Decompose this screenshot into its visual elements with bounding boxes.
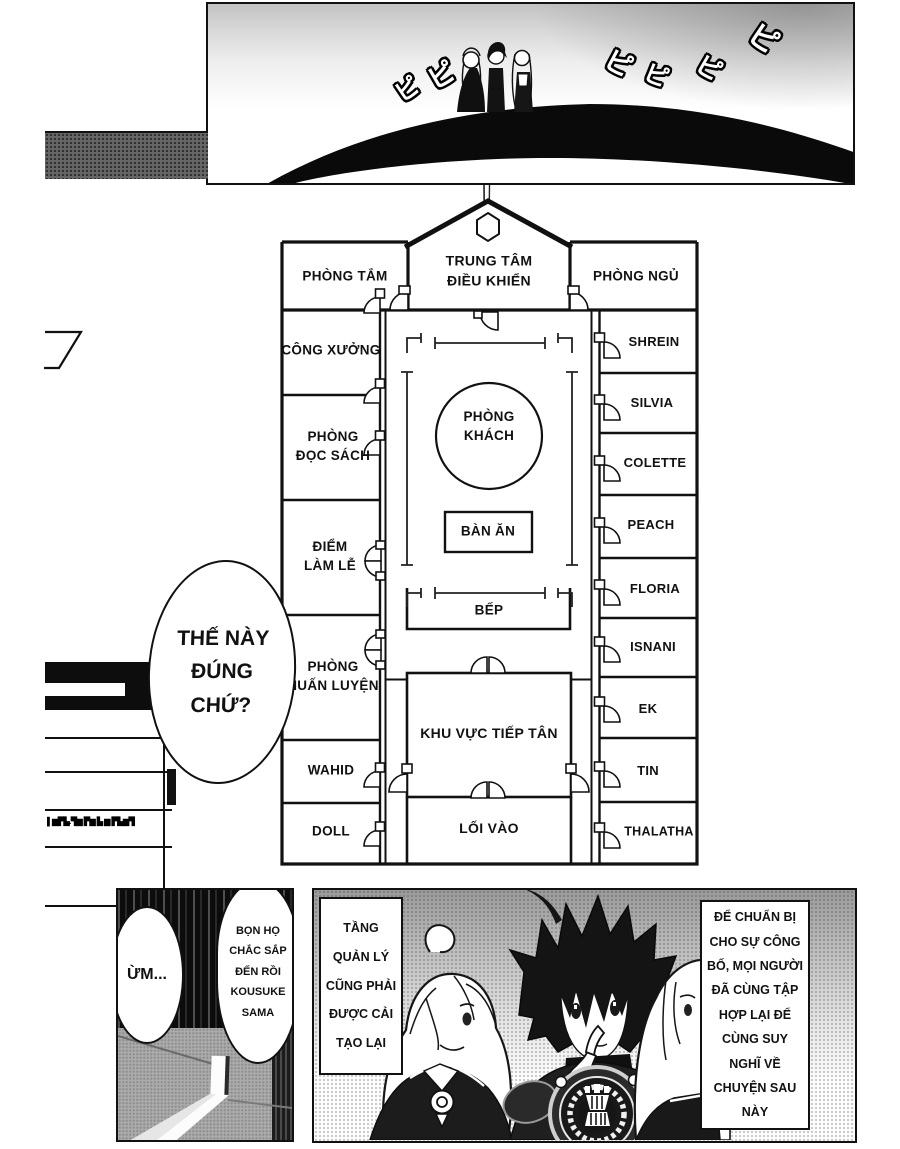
bottom-left-panel-dark-room: ỪM... BỌN HỌ CHẮC SẮP ĐẾN RỒI KOUSUKE SA… — [116, 888, 294, 1142]
room-label-thalatha: THALATHA — [624, 823, 694, 841]
hexagon-icon — [477, 213, 499, 241]
room-label-colette: COLETTE — [624, 454, 687, 472]
room-label-reception: KHU VỰC TIẾP TÂN — [420, 724, 558, 744]
caption-management: TẦNG QUẢN LÝ CŨNG PHẢI ĐƯỢC CẢI TẠO LẠI — [319, 897, 403, 1075]
bottom-wide-panel-characters: TẦNG QUẢN LÝ CŨNG PHẢI ĐƯỢC CẢI TẠO LẠI … — [312, 888, 857, 1143]
caption-announcement: ĐỂ CHUẨN BỊ CHO SỰ CÔNG BỐ, MỌI NGƯỜI ĐÃ… — [700, 900, 810, 1130]
room-label-kitchen: BẾP — [475, 602, 504, 621]
room-label-control: TRUNG TÂM ĐIỀU KHIỂN — [446, 251, 533, 290]
room-label-shrein: SHREIN — [629, 333, 680, 351]
room-label-wahid: WAHID — [308, 762, 355, 781]
room-label-bathroom: PHÒNG TẮM — [302, 268, 387, 287]
floorplan: TRUNG TÂM ĐIỀU KHIỂN PHÒNG TẮM CÔNG XƯỞN… — [0, 0, 900, 900]
room-label-living: PHÒNG KHÁCH — [463, 408, 514, 446]
gear-emblem-icon — [550, 1067, 644, 1140]
floorplan-drawing — [0, 0, 900, 900]
room-label-silvia: SILVIA — [631, 394, 674, 412]
room-label-training: PHÒNG HUẤN LUYỆN — [287, 658, 379, 696]
room-label-ceremony: ĐIỂM LÀM LỄ — [304, 538, 356, 576]
room-label-reading: PHÒNG ĐỌC SÁCH — [296, 428, 370, 466]
room-label-ek: EK — [639, 700, 658, 718]
manga-page: ピ ピ ピ ピ ピ ピ ▌▆▛▙.▜▆ ▛▆ ▙ ▆ ▛▙▆▜ — [0, 0, 900, 1149]
speech-bubble-arrival: BỌN HỌ CHẮC SẮP ĐẾN RỒI KOUSUKE SAMA — [216, 888, 294, 1064]
room-label-workshop: CÔNG XƯỞNG — [281, 342, 380, 361]
room-label-bedroom: PHÒNG NGỦ — [593, 268, 679, 287]
room-label-doll: DOLL — [312, 823, 350, 842]
room-label-isnani: ISNANI — [630, 638, 676, 656]
room-label-dining: BÀN ĂN — [461, 523, 515, 542]
room-label-floria: FLORIA — [630, 580, 680, 598]
room-label-entrance: LỐI VÀO — [459, 819, 519, 839]
room-label-peach: PEACH — [627, 516, 674, 534]
room-label-tin: TIN — [637, 762, 659, 780]
